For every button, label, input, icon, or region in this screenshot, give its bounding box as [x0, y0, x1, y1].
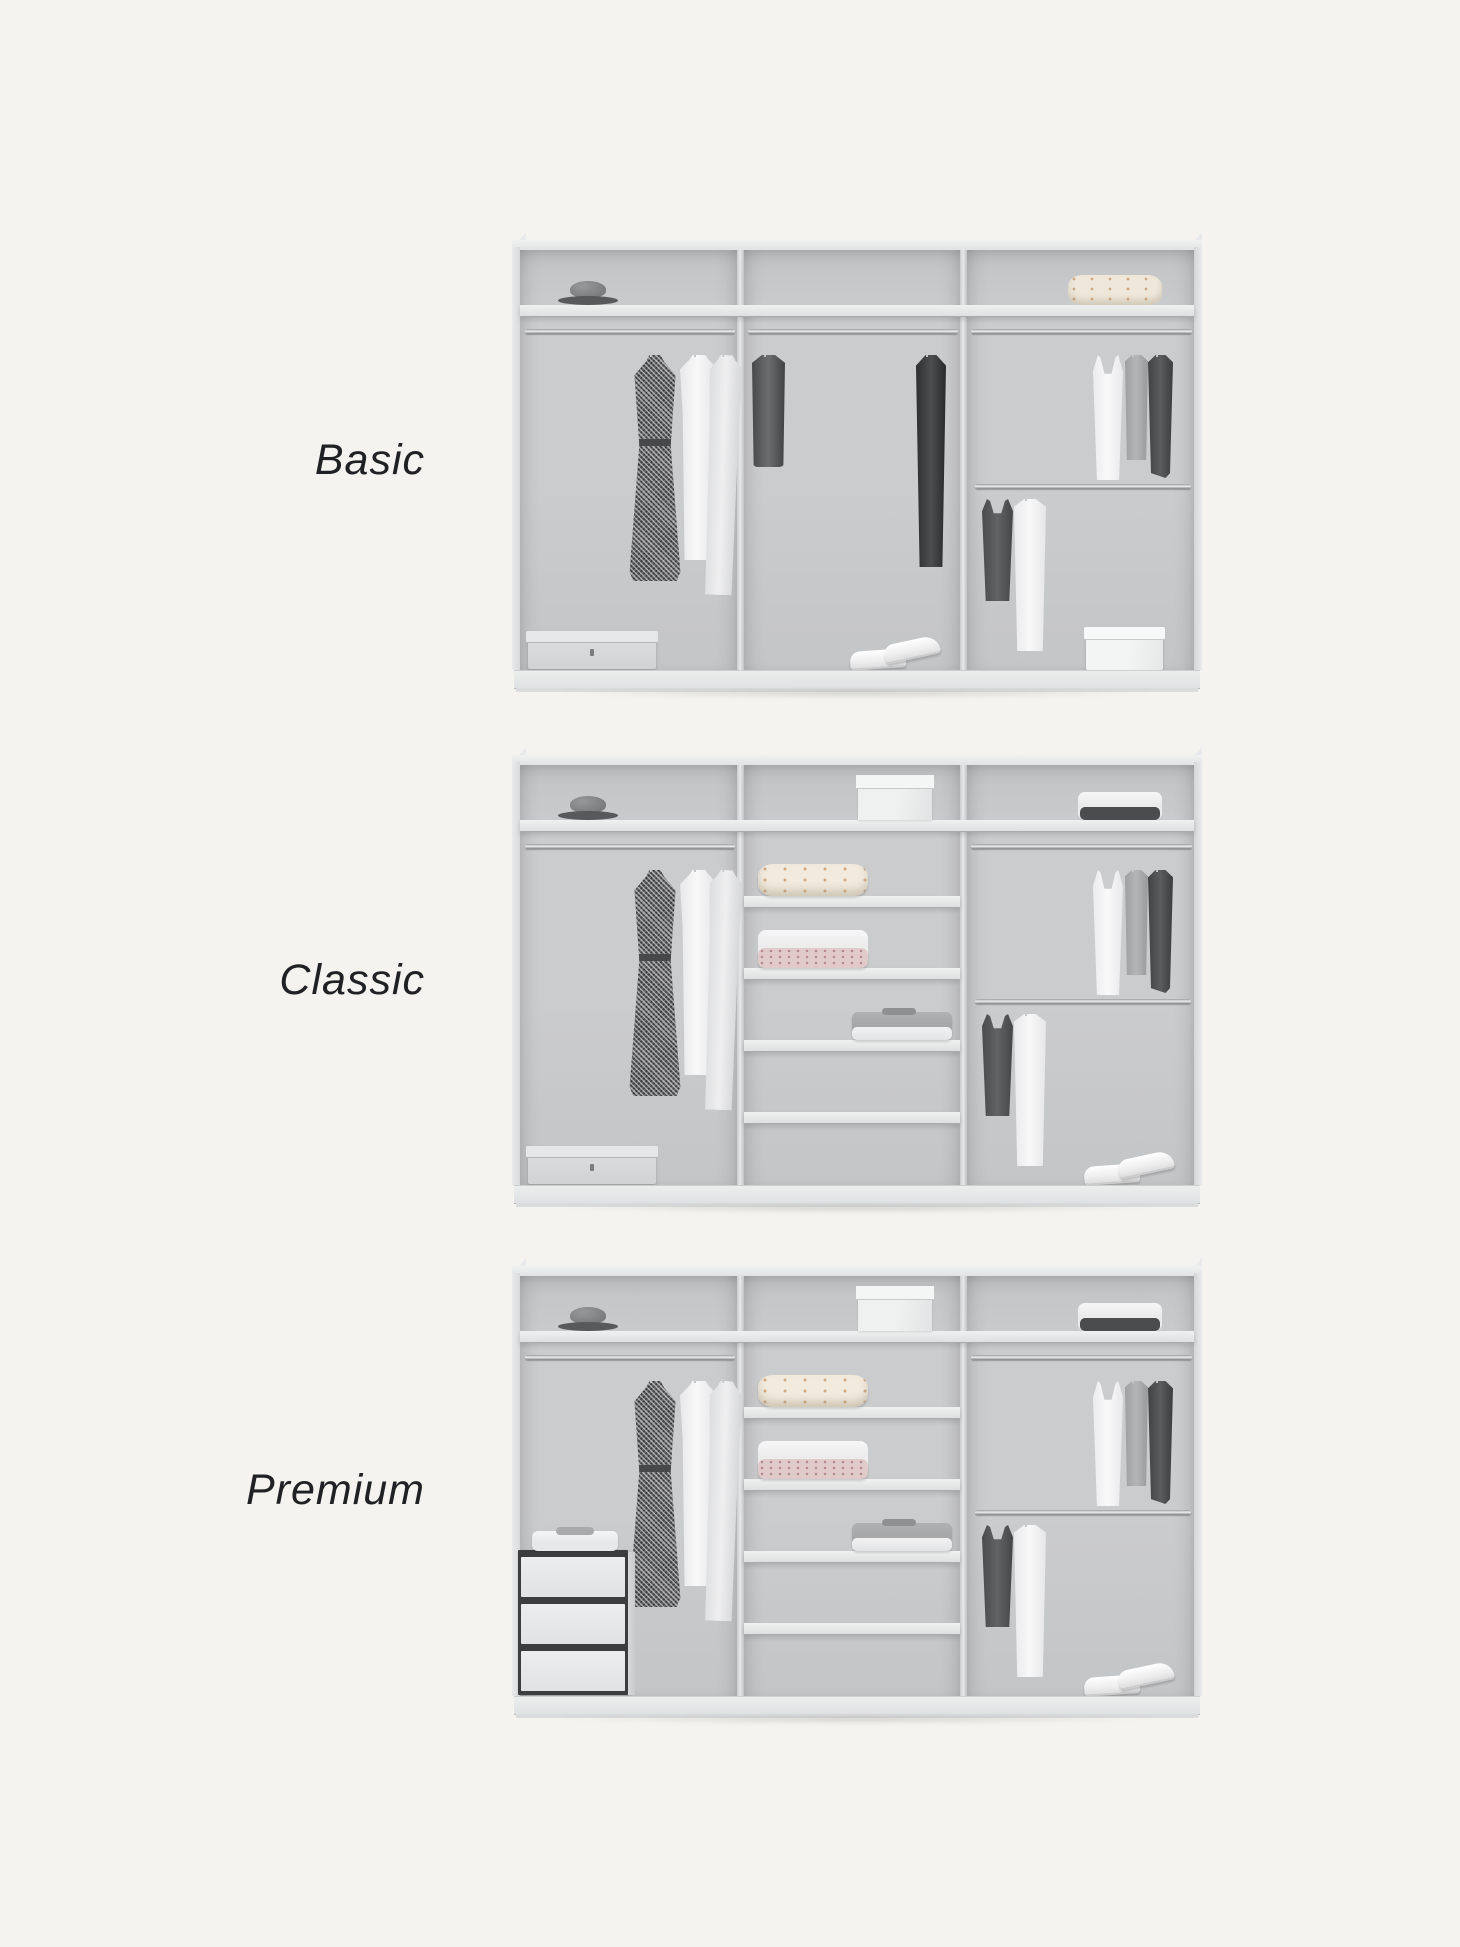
white-sneakers: [850, 639, 946, 669]
hat: [558, 1307, 618, 1331]
tier-label-classic: Classic: [105, 956, 425, 1004]
long-white-shirt: [1014, 1014, 1046, 1166]
gray-shirt: [1125, 870, 1148, 975]
wardrobe-side-wall-left: [512, 247, 520, 670]
hanging-rail-middle: [748, 329, 958, 334]
dark-shirt: [1148, 1381, 1173, 1504]
white-and-rose-folded-stack: [758, 1441, 868, 1479]
middle-shelf: [744, 1479, 960, 1491]
middle-shelf: [744, 1623, 960, 1635]
gray-storage-box: [528, 631, 656, 669]
wardrobe-side-wall-right: [1194, 247, 1202, 670]
dark-tank-top: [982, 1525, 1013, 1627]
sneaker: [1117, 1660, 1176, 1690]
tier-label-basic: Basic: [105, 436, 425, 484]
wardrobe-side-wall-right: [1194, 762, 1202, 1185]
black-coat: [916, 355, 946, 567]
middle-shelf: [744, 968, 960, 980]
top-shelf: [520, 820, 1194, 832]
white-tank-top: [1093, 870, 1123, 995]
wardrobe-plinth: [514, 1696, 1200, 1715]
hanging-rail-left: [525, 329, 735, 334]
white-and-dark-folded-stack: [1078, 792, 1162, 820]
dark-jacket: [752, 355, 785, 467]
dark-shirt: [1148, 870, 1173, 993]
gray-shirt: [1125, 355, 1148, 460]
white-box: [858, 1286, 932, 1331]
hanging-rail-right-lower: [975, 999, 1191, 1004]
white-tank-top: [1093, 355, 1123, 480]
drawer-front: [521, 1604, 625, 1644]
gray-and-white-folded-stack: [852, 1523, 952, 1551]
drawer-front: [521, 1557, 625, 1597]
middle-shelf: [744, 1551, 960, 1563]
middle-shelf: [744, 1112, 960, 1124]
wardrobe-shadow: [520, 1717, 1194, 1726]
three-drawer-unit: [518, 1550, 628, 1695]
hanging-rail-left: [525, 1355, 735, 1360]
middle-shelf: [744, 1040, 960, 1052]
wardrobe-premium: [512, 1253, 1202, 1719]
wardrobe-shadow: [520, 1206, 1194, 1215]
folded-cream-sweater: [1068, 275, 1162, 305]
dark-shirt: [1148, 355, 1173, 478]
middle-shelf: [744, 896, 960, 908]
white-sneakers: [1084, 1665, 1180, 1695]
tier-label-premium: Premium: [105, 1466, 425, 1514]
hanging-rail-left: [525, 844, 735, 849]
hat: [558, 281, 618, 305]
drawer-front: [521, 1651, 625, 1691]
top-shelf: [520, 1331, 1194, 1343]
folded-cream-sweater: [758, 864, 868, 896]
wardrobe-tiers-illustration: Basic: [0, 0, 1460, 1947]
wardrobe-plinth: [514, 1185, 1200, 1204]
hat: [558, 796, 618, 820]
hanging-rail-right-lower: [975, 484, 1191, 489]
sneaker: [1117, 1149, 1176, 1179]
wardrobe-classic: [512, 742, 1202, 1208]
white-and-rose-folded-stack: [758, 930, 868, 968]
hanging-rail-right-upper: [971, 1355, 1192, 1360]
hanging-rail-right-upper: [971, 844, 1192, 849]
white-storage-box: [1086, 627, 1163, 670]
folded-cream-sweater: [758, 1375, 868, 1407]
wardrobe-shadow: [520, 691, 1194, 700]
folded-stack-on-drawers: [532, 1531, 618, 1551]
gray-and-white-folded-stack: [852, 1012, 952, 1040]
wardrobe-plinth: [514, 670, 1200, 689]
middle-shelf: [744, 1407, 960, 1419]
top-shelf: [520, 305, 1194, 317]
sneaker: [883, 634, 942, 664]
hanging-rail-right-upper: [971, 329, 1192, 334]
wardrobe-basic: [512, 227, 1202, 693]
white-and-dark-folded-stack: [1078, 1303, 1162, 1331]
gray-shirt: [1125, 1381, 1148, 1486]
long-white-shirt: [1014, 499, 1046, 651]
dark-tank-top: [982, 1014, 1013, 1116]
white-sneakers: [1084, 1154, 1180, 1184]
gray-storage-box: [528, 1146, 656, 1184]
wardrobe-side-wall-right: [1194, 1273, 1202, 1696]
wardrobe-side-wall-left: [512, 762, 520, 1185]
hanging-rail-right-lower: [975, 1510, 1191, 1515]
white-tank-top: [1093, 1381, 1123, 1506]
long-white-shirt: [1014, 1525, 1046, 1677]
dark-tank-top: [982, 499, 1013, 601]
white-box: [858, 775, 932, 820]
